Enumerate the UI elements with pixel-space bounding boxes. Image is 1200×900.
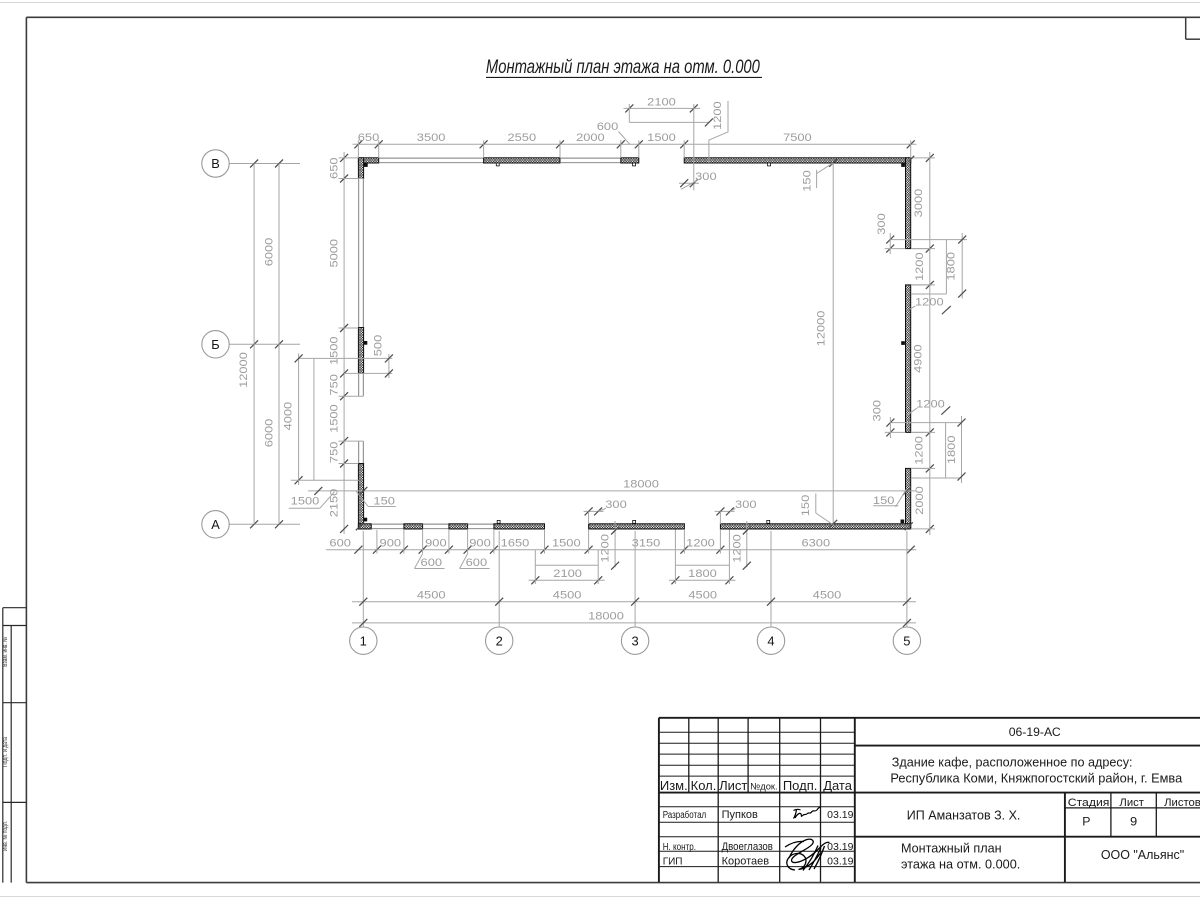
svg-text:Пупков: Пупков [722,809,758,821]
svg-text:6000: 6000 [263,238,275,267]
svg-text:этажа на отм. 0.000.: этажа на отм. 0.000. [901,857,1020,871]
svg-text:600: 600 [597,121,619,133]
svg-text:18000: 18000 [588,611,624,623]
svg-text:4500: 4500 [553,590,582,602]
svg-text:Двоеглазов: Двоеглазов [722,841,773,853]
svg-text:Лист: Лист [1119,797,1144,809]
svg-text:300: 300 [735,499,757,511]
svg-text:1200: 1200 [712,101,724,130]
svg-text:5000: 5000 [329,239,341,268]
svg-text:1500: 1500 [647,132,676,144]
svg-text:1800: 1800 [946,252,958,281]
svg-text:650: 650 [358,132,380,144]
svg-text:12000: 12000 [238,352,250,388]
svg-text:2150: 2150 [329,489,341,518]
svg-text:В: В [211,156,220,171]
svg-text:Подп. и дата: Подп. и дата [3,736,9,767]
svg-text:03.19: 03.19 [827,855,853,867]
svg-text:1650: 1650 [501,538,530,550]
svg-text:600: 600 [466,557,488,569]
svg-text:7500: 7500 [783,132,812,144]
svg-text:1200: 1200 [915,297,944,309]
svg-text:300: 300 [876,213,888,235]
svg-text:Монтажный план: Монтажный план [901,842,1002,856]
svg-text:6000: 6000 [263,419,275,448]
svg-text:1800: 1800 [946,436,958,465]
svg-text:900: 900 [380,538,402,550]
svg-text:750: 750 [329,374,341,396]
svg-text:500: 500 [373,335,385,357]
svg-text:3: 3 [632,633,639,648]
svg-text:ГИП: ГИП [663,856,683,867]
svg-text:1200: 1200 [686,538,715,550]
svg-text:600: 600 [329,538,351,550]
svg-text:3500: 3500 [417,132,446,144]
svg-text:9: 9 [1130,814,1137,828]
svg-text:1500: 1500 [329,404,341,433]
svg-text:4500: 4500 [688,590,717,602]
svg-text:300: 300 [871,400,883,422]
svg-text:03.19: 03.19 [827,841,853,853]
svg-text:900: 900 [469,538,491,550]
svg-text:Изм.: Изм. [660,778,688,793]
svg-text:Листов: Листов [1164,797,1200,809]
svg-text:4: 4 [767,633,774,648]
svg-text:А: А [211,517,220,532]
svg-text:2100: 2100 [553,568,582,580]
svg-text:600: 600 [421,557,443,569]
svg-text:150: 150 [800,495,812,517]
svg-text:2000: 2000 [576,132,605,144]
svg-text:ИП Аманзатов З. Х.: ИП Аманзатов З. Х. [907,808,1021,822]
svg-text:4500: 4500 [417,590,446,602]
svg-text:ООО "Альянс": ООО "Альянс" [1101,848,1184,862]
svg-text:Р: Р [1082,814,1090,828]
svg-text:1200: 1200 [600,534,612,563]
svg-text:Монтажный план этажа на отм. 0: Монтажный план этажа на отм. 0.000 [486,56,760,78]
svg-text:Здание кафе, расположенное по: Здание кафе, расположенное по адресу: [892,755,1133,770]
svg-text:6300: 6300 [802,538,831,550]
svg-text:1500: 1500 [329,336,341,365]
svg-text:Подп.: Подп. [783,778,818,793]
svg-text:1200: 1200 [916,398,945,410]
svg-text:Стадия: Стадия [1068,797,1110,809]
svg-text:Республика Коми, Княжпогостски: Республика Коми, Княжпогостский район, г… [890,771,1183,786]
svg-text:1800: 1800 [688,568,717,580]
svg-text:900: 900 [425,538,447,550]
svg-text:3150: 3150 [632,538,661,550]
svg-text:Разработал: Разработал [663,809,707,821]
svg-text:650: 650 [329,157,341,179]
svg-text:3000: 3000 [913,189,925,218]
svg-text:4500: 4500 [813,590,842,602]
svg-text:750: 750 [329,442,341,464]
svg-text:Лист: Лист [719,778,747,793]
svg-text:1200: 1200 [914,436,926,465]
svg-text:150: 150 [373,495,395,507]
svg-text:Взам. инв. №: Взам. инв. № [2,637,9,667]
svg-text:06-19-АС: 06-19-АС [1009,725,1061,739]
svg-text:12000: 12000 [816,311,828,347]
svg-text:Б: Б [211,337,219,352]
svg-text:5: 5 [903,633,910,648]
svg-text:2100: 2100 [647,96,676,108]
svg-text:Н. контр.: Н. контр. [663,842,696,853]
svg-text:03.19: 03.19 [827,809,853,821]
svg-text:4900: 4900 [913,344,925,373]
svg-text:18000: 18000 [623,479,659,491]
svg-text:300: 300 [605,499,627,511]
svg-text:2550: 2550 [508,132,537,144]
svg-text:1500: 1500 [291,496,320,508]
svg-text:150: 150 [801,170,813,192]
svg-text:1500: 1500 [552,538,581,550]
svg-text:№док.: №док. [750,781,777,792]
svg-text:2: 2 [496,633,503,648]
svg-text:4000: 4000 [282,402,294,431]
svg-text:1200: 1200 [731,534,743,563]
svg-text:Инв. № подл.: Инв. № подл. [2,821,9,851]
svg-text:Коротаев: Коротаев [722,855,770,867]
svg-text:Кол.: Кол. [691,778,717,793]
svg-text:Дата: Дата [823,778,853,793]
svg-text:1: 1 [360,633,367,648]
svg-text:300: 300 [695,171,717,183]
svg-text:1200: 1200 [914,252,926,281]
